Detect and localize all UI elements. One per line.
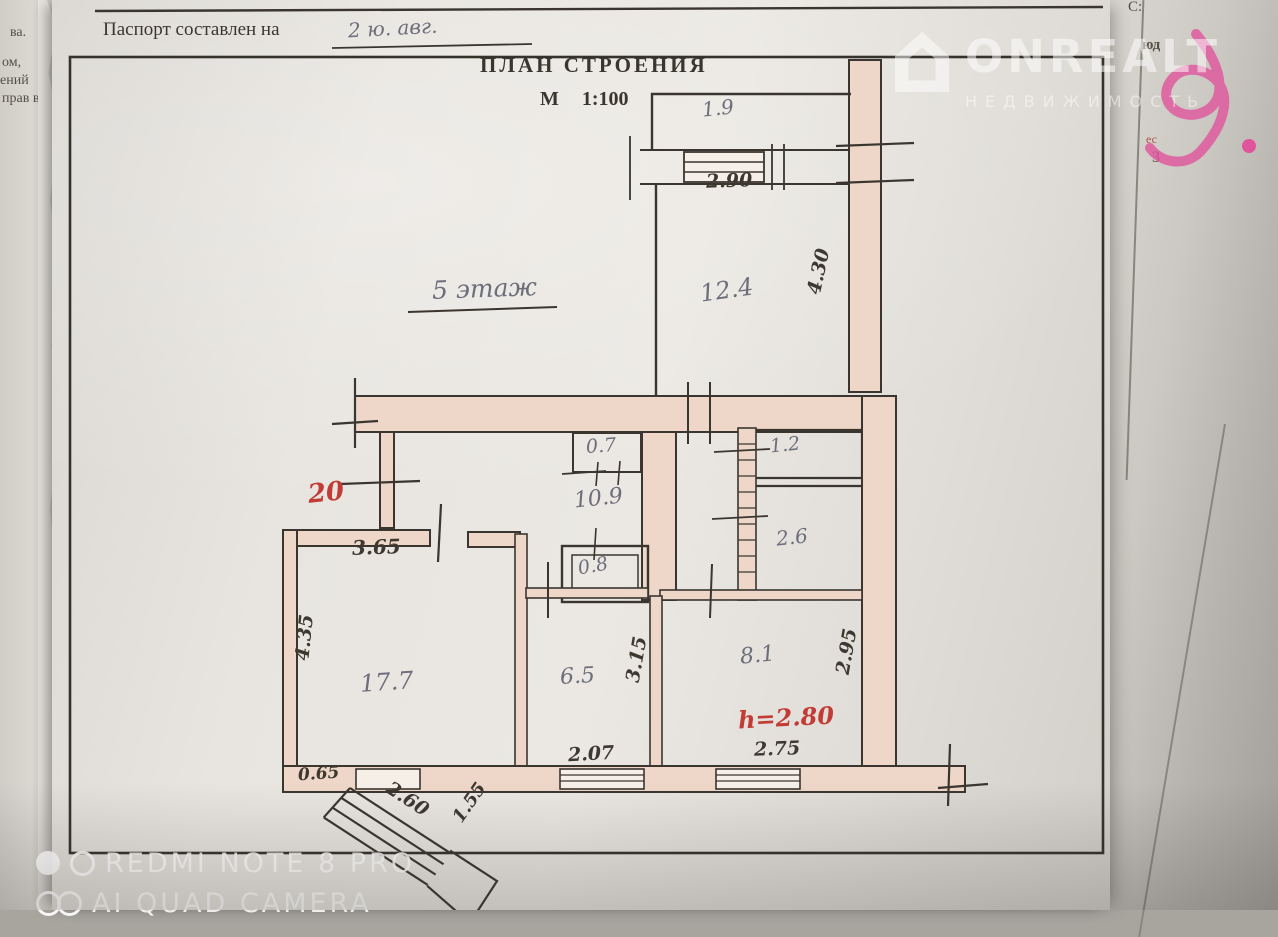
camera-watermark: REDMI NOTE 8 PRO AI QUAD CAMERA	[36, 846, 415, 920]
plan-title: ПЛАН СТРОЕНИЯ	[480, 55, 708, 76]
house-icon	[893, 30, 951, 94]
area-label-room-12-4: 12.4	[699, 274, 755, 305]
watermark-brand: ONREALT	[965, 30, 1221, 83]
window-symbol-kitchen	[560, 769, 644, 789]
camera-dot-icon	[57, 891, 82, 916]
camera-mode-text: AI QUAD CAMERA	[92, 888, 372, 919]
camera-dot-icon	[36, 851, 60, 875]
unit-number-red-note: 20	[307, 478, 346, 508]
camera-dot-icon	[70, 851, 95, 876]
dim-label-4-35: 4.35	[293, 613, 317, 661]
plan-scale: М 1:100	[540, 89, 629, 109]
window-symbol-bedroom	[716, 769, 800, 789]
area-label-bath-2-6: 2.6	[775, 525, 809, 548]
floorplan-drawing	[0, 0, 1278, 910]
dim-label-2-07: 2.07	[568, 744, 615, 765]
area-label-pantry-0-7: 0.7	[585, 436, 616, 457]
shaft-wall	[738, 428, 756, 600]
passport-line-value-handwritten: 2 ю. авг.	[348, 16, 438, 41]
ceiling-height-red-note: h=2.80	[737, 704, 834, 733]
area-label-kitchen-6-5: 6.5	[559, 665, 595, 689]
area-label-closet-1-2: 1.2	[769, 434, 801, 456]
area-label-living-17-7: 17.7	[359, 668, 414, 696]
dim-label-2-75: 2.75	[754, 739, 801, 760]
area-label-hall-10-9: 10.9	[573, 486, 624, 513]
photo-of-floorplan-document: { "document": { "passport_label": "Паспо…	[0, 0, 1278, 910]
onrealt-watermark: ONREALT НЕДВИЖИМОСТЬ	[893, 30, 1221, 111]
area-label-bedroom-8-1: 8.1	[739, 643, 776, 669]
watermark-tagline: НЕДВИЖИМОСТЬ	[965, 92, 1221, 111]
area-label-balcony: 1.9	[701, 96, 735, 119]
dim-label-2-90: 2.90	[706, 171, 753, 192]
area-label-wc-0-8: 0.8	[577, 555, 610, 579]
floor-note-handwritten: 5 этаж	[432, 274, 538, 303]
dim-label-0-65: 0.65	[297, 765, 339, 785]
camera-model-text: REDMI NOTE 8 PRO	[105, 848, 415, 879]
dim-label-3-65: 3.65	[352, 536, 401, 558]
passport-line-label: Паспорт составлен на	[103, 20, 280, 39]
